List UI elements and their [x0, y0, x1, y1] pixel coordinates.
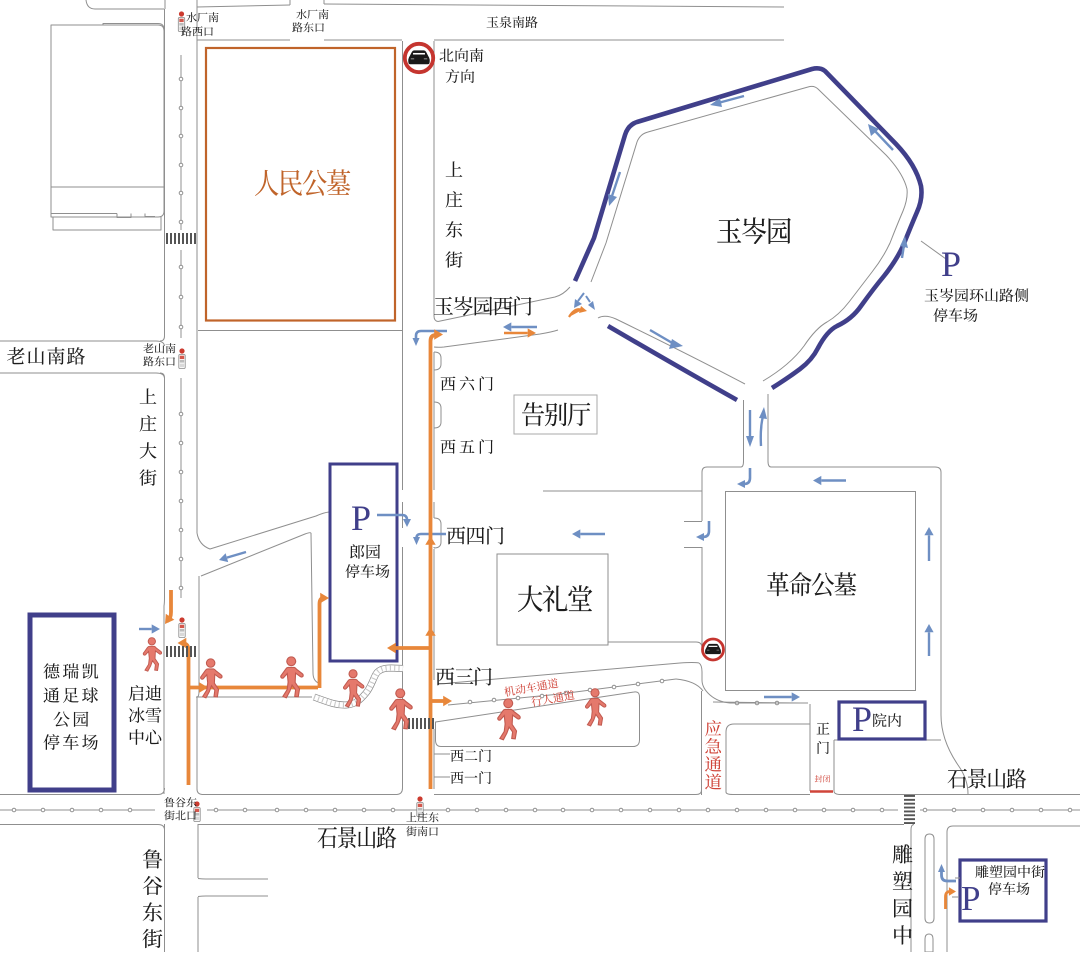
svg-text:P: P	[961, 879, 980, 918]
svg-text:P: P	[941, 244, 961, 284]
svg-text:P: P	[351, 498, 371, 538]
svg-text:P: P	[852, 699, 872, 739]
